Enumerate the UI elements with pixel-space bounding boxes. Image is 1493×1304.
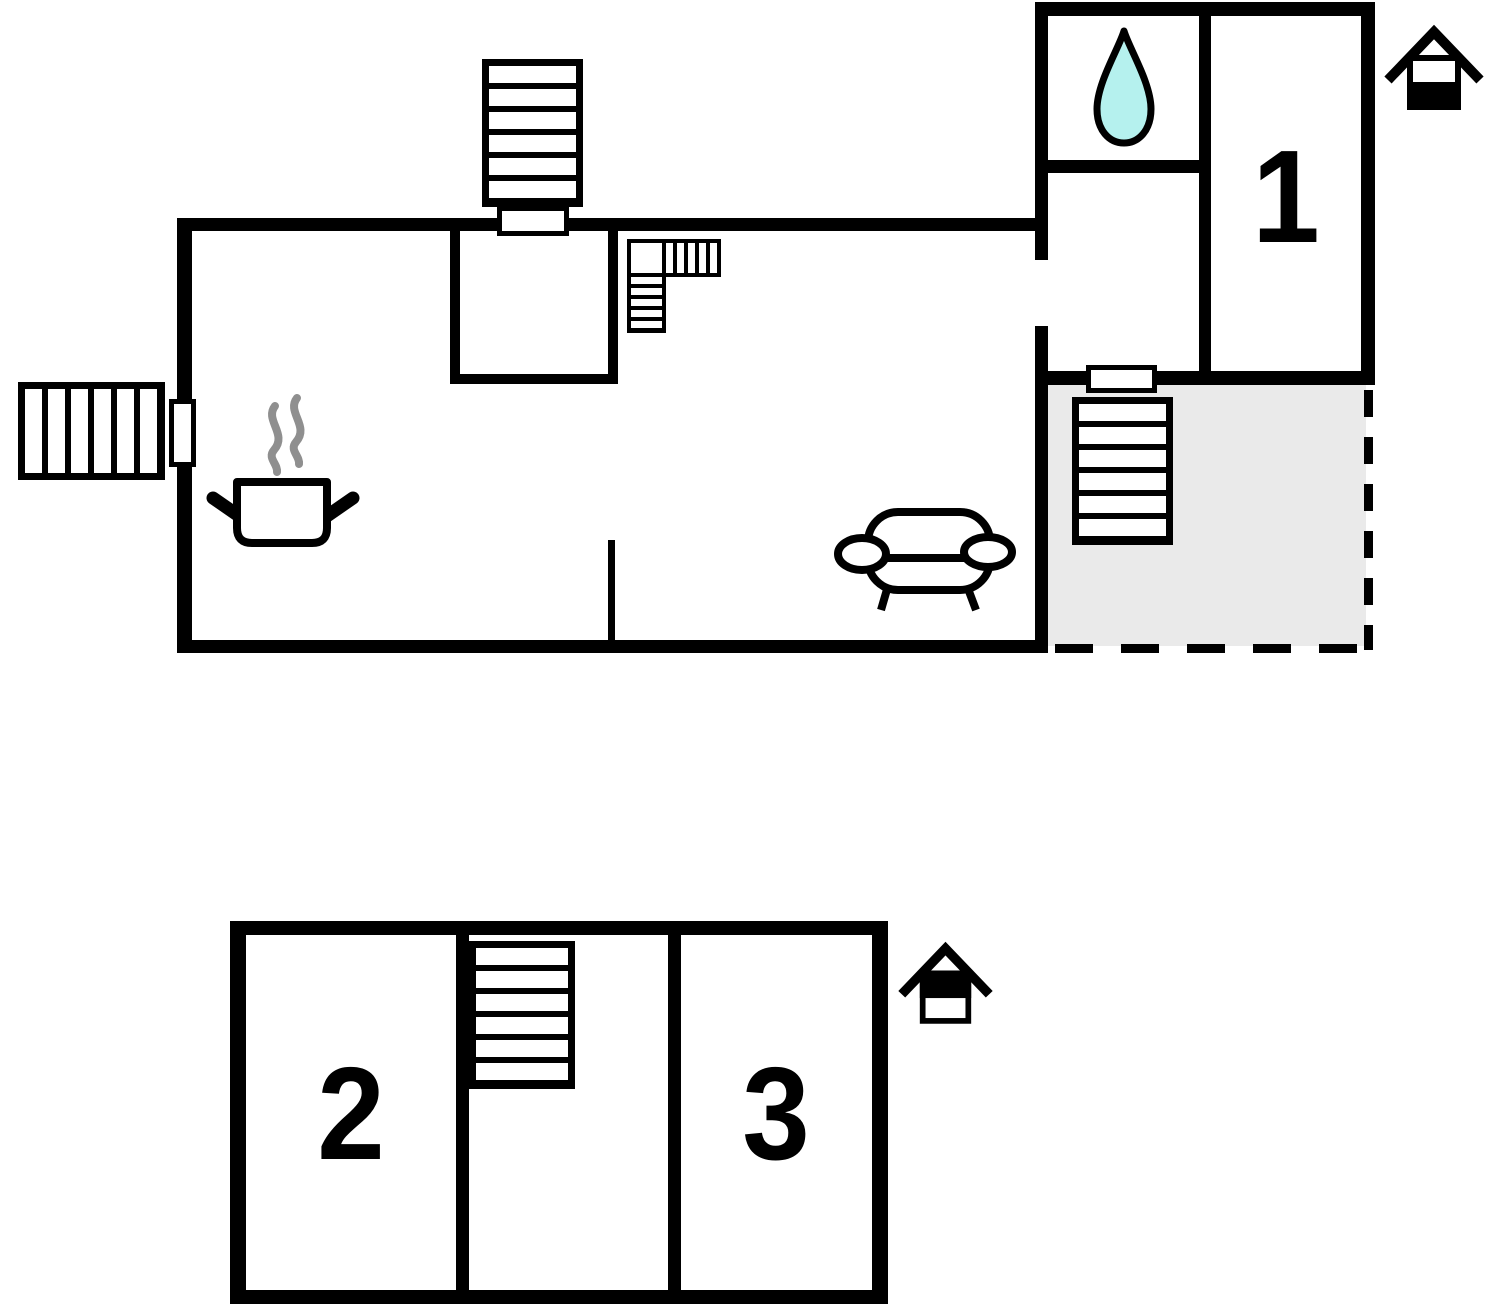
upper-floor-stairs-icon <box>469 941 575 1089</box>
floor-plan-canvas: 1 2 3 <box>0 0 1493 1304</box>
wall-upper-left <box>230 921 246 1304</box>
wall-right-upper-segment <box>1035 2 1048 260</box>
cooking-pot-icon <box>198 392 370 552</box>
room-1-label: 1 <box>1231 133 1341 261</box>
wall-partial-divider <box>608 540 615 643</box>
wall-room3-divider <box>668 921 681 1304</box>
wall-vestibule-left <box>450 231 460 383</box>
exterior-stairs-top-icon <box>482 59 583 207</box>
terrace-stairs-icon <box>1072 397 1173 545</box>
upper-floor-house-icon <box>897 936 994 1024</box>
sofa-icon <box>832 502 1017 614</box>
terrace-dashed-bottom-edge <box>1055 644 1373 653</box>
exterior-stairs-left-icon <box>18 382 165 480</box>
wall-wing-right <box>1361 2 1375 385</box>
wall-upper-top <box>230 921 888 935</box>
terrace-dashed-right-edge <box>1364 390 1373 650</box>
ground-floor-house-icon <box>1383 20 1485 110</box>
corner-stairs-upper-run-icon <box>662 239 721 277</box>
entry-door-top <box>497 206 569 236</box>
room-2-label: 2 <box>296 1050 406 1178</box>
wall-room1-divider <box>1199 10 1211 385</box>
wall-vestibule-right <box>608 231 618 383</box>
wall-room2-divider <box>456 921 469 1304</box>
corner-stairs-lower-run-icon <box>627 273 666 333</box>
corner-stairs-landing <box>627 239 666 277</box>
water-drop-icon <box>1088 24 1160 150</box>
wall-upper-right <box>872 921 888 1304</box>
wall-upper-bottom <box>230 1290 888 1304</box>
steam-line-icon <box>294 398 301 464</box>
room-3-label: 3 <box>721 1050 831 1178</box>
wall-bathroom-bottom <box>1048 160 1199 173</box>
terrace-door <box>1086 365 1157 393</box>
wall-vestibule-bottom <box>450 374 618 384</box>
steam-line-icon <box>272 406 279 472</box>
side-door-left <box>169 399 196 467</box>
wall-top-main <box>177 218 1048 231</box>
